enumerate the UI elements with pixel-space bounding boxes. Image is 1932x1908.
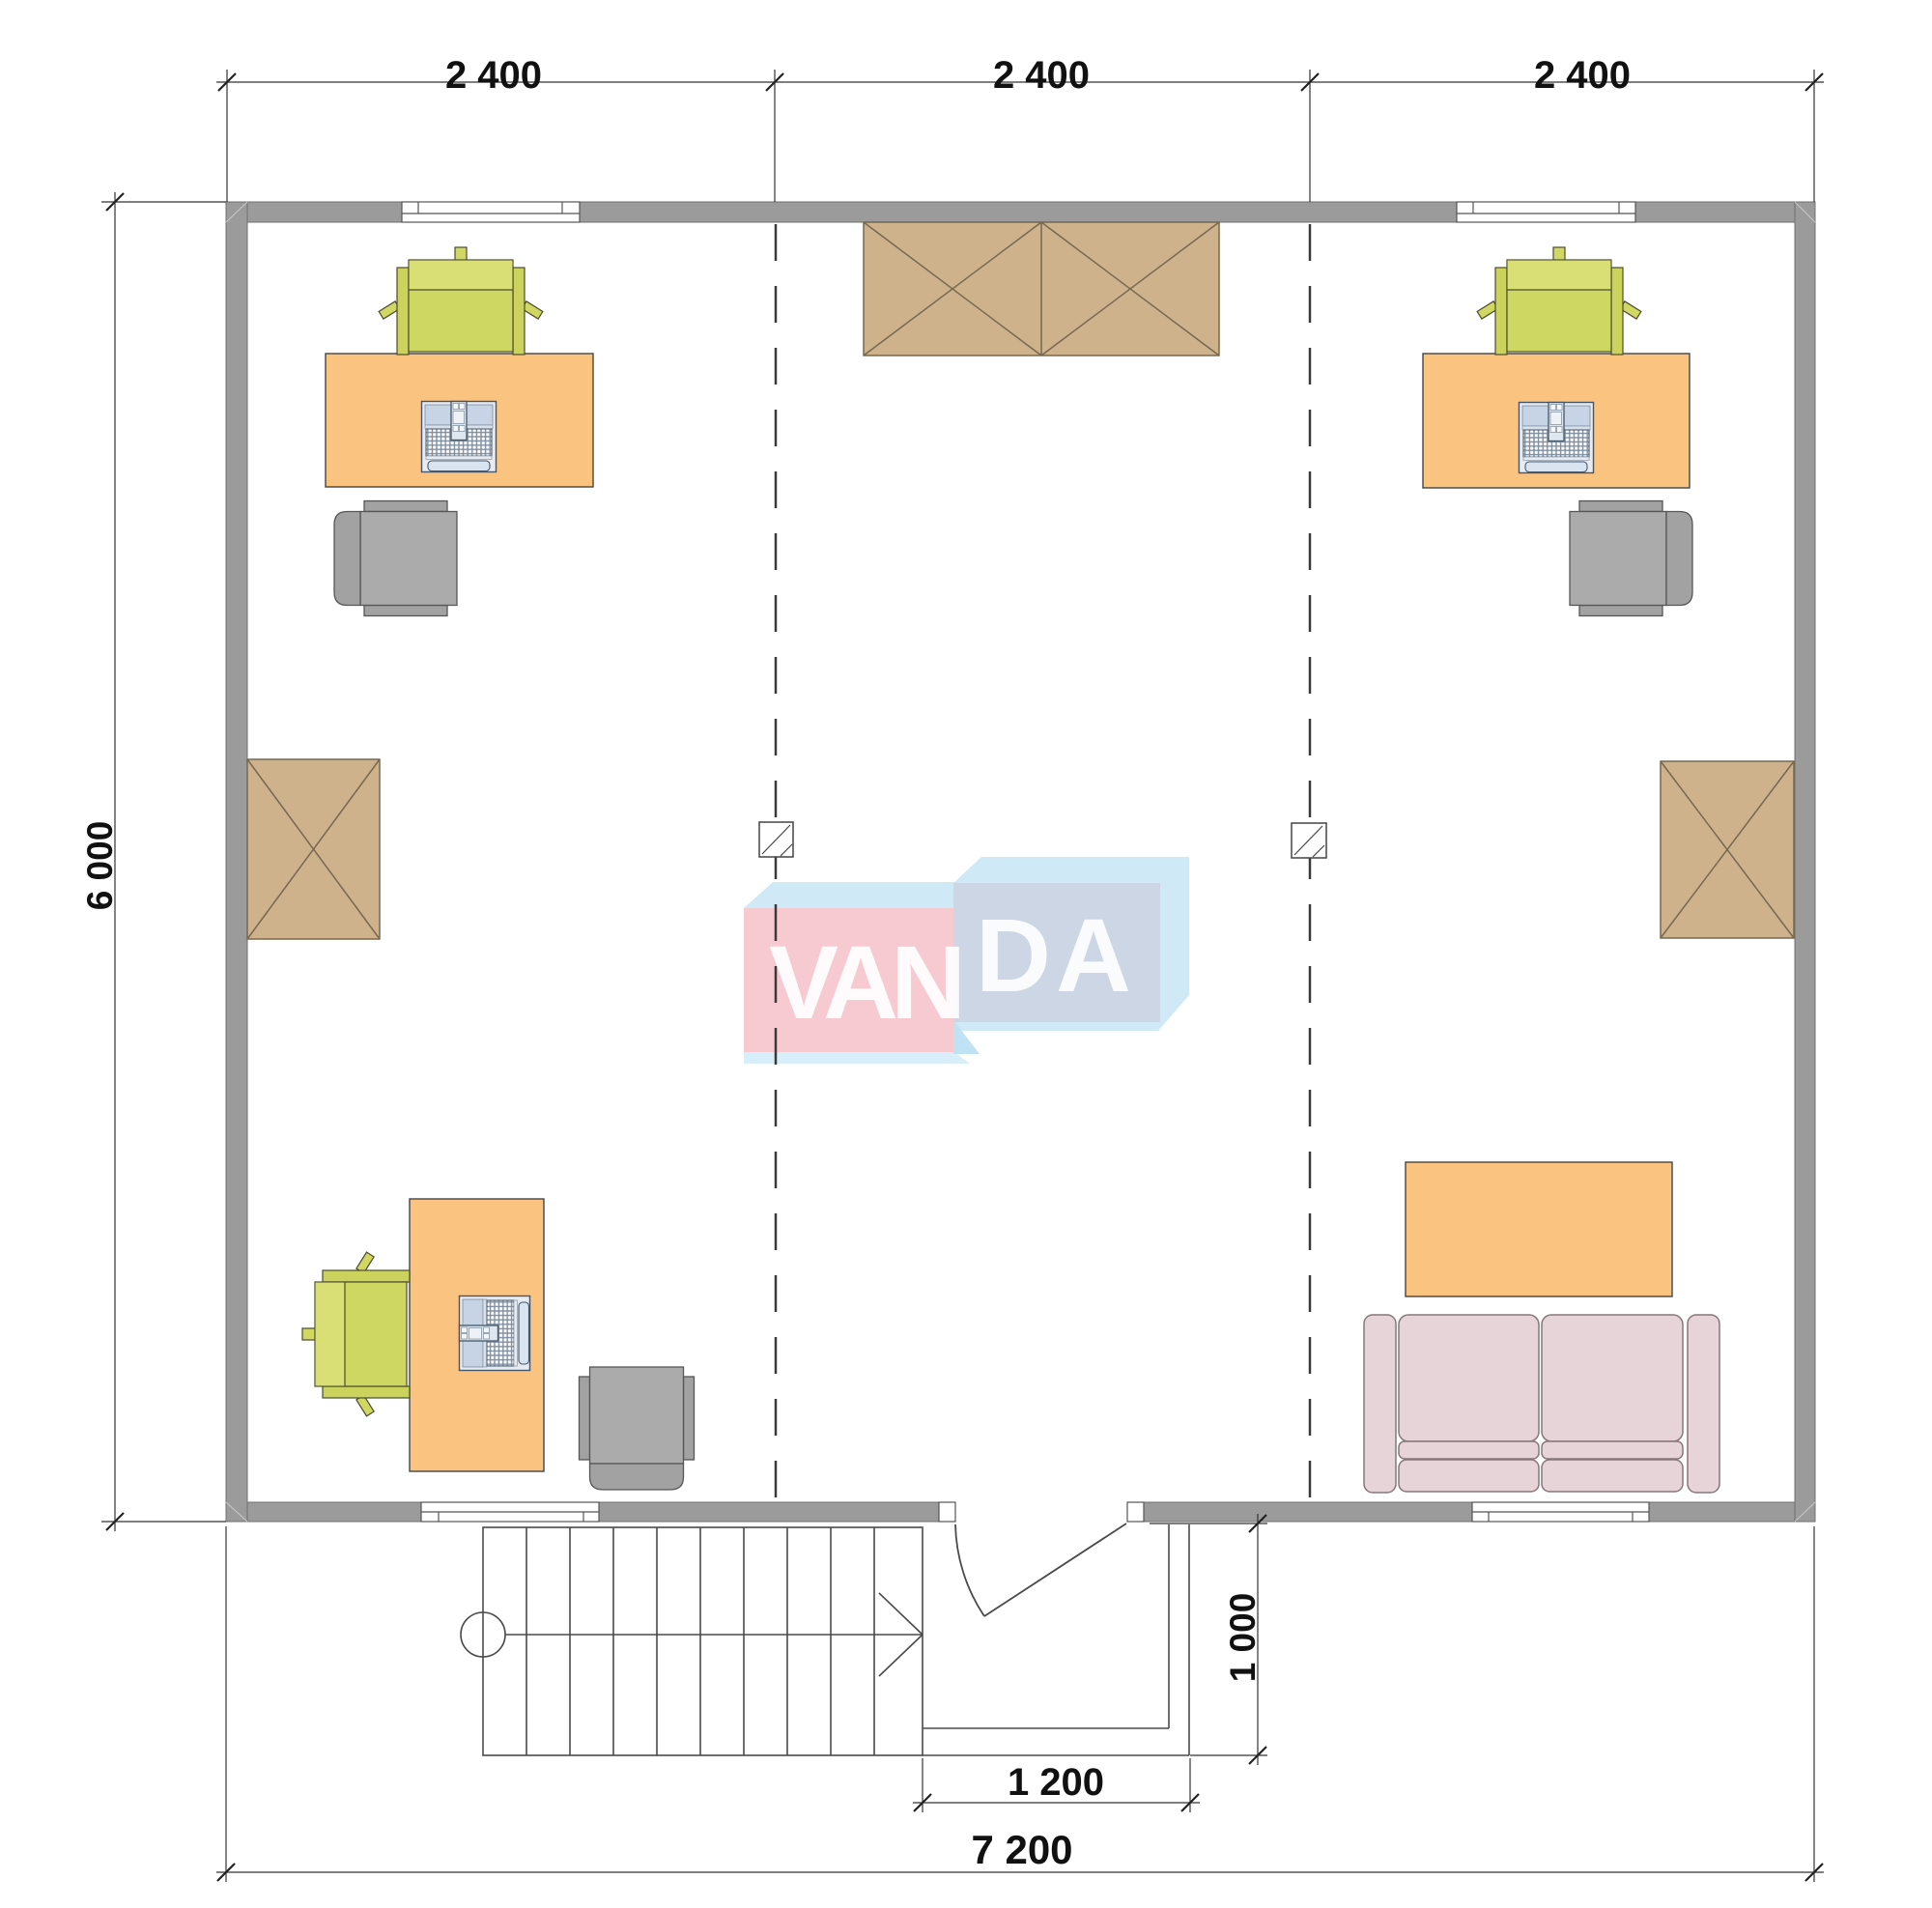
svg-text:2 400: 2 400 — [445, 54, 542, 97]
svg-text:7 200: 7 200 — [971, 1827, 1072, 1872]
svg-text:1 000: 1 000 — [1223, 1593, 1263, 1683]
svg-text:DA: DA — [976, 897, 1136, 1013]
svg-text:6 000: 6 000 — [80, 821, 120, 911]
svg-text:VAN: VAN — [769, 924, 959, 1040]
svg-text:2 400: 2 400 — [993, 54, 1090, 97]
svg-text:2 400: 2 400 — [1534, 54, 1631, 97]
svg-text:1 200: 1 200 — [1008, 1761, 1104, 1804]
